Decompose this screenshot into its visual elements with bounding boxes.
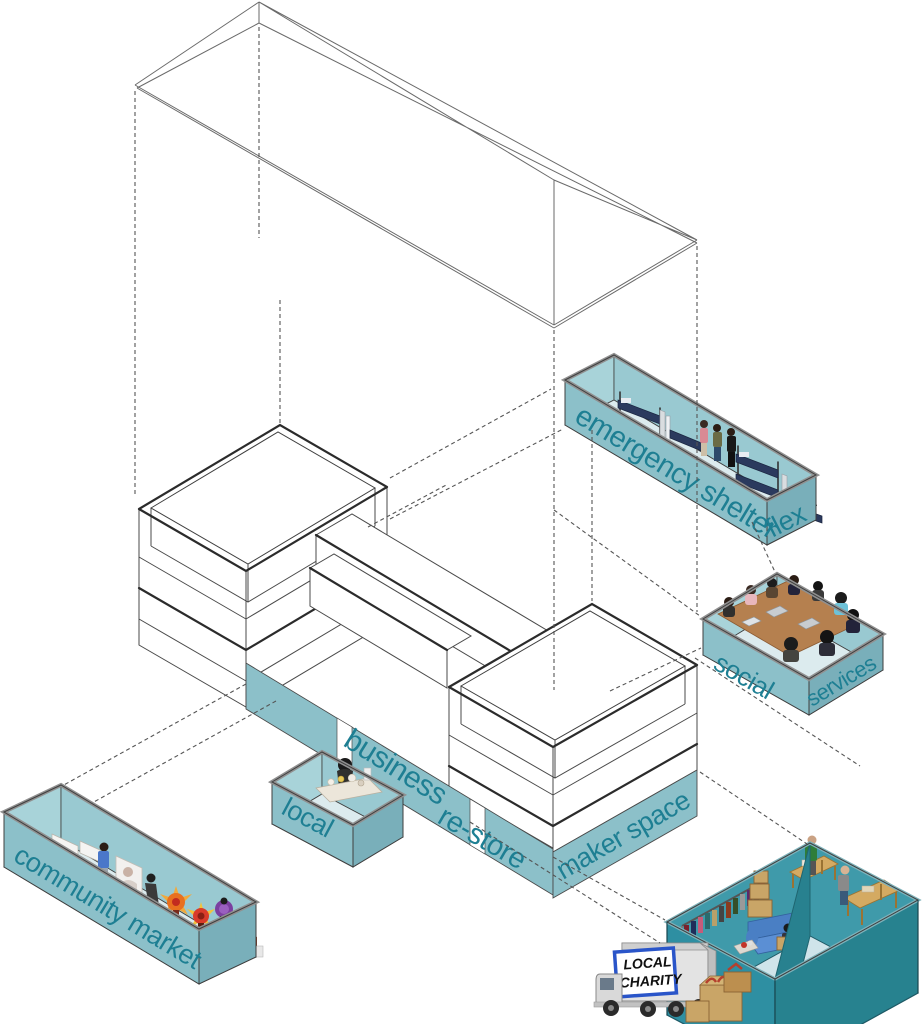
social-services-box: social services	[703, 574, 883, 715]
building-envelope-wireframe	[135, 2, 697, 328]
diagram-stage: business re-store maker space local	[0, 0, 922, 1024]
community-market-box: community market	[4, 785, 263, 984]
truck-windshield	[600, 978, 614, 990]
axonometric-program-diagram: business re-store maker space local	[0, 0, 922, 1024]
emergency-shelter-box: emergency shelter flex	[565, 355, 822, 546]
truck-sign-line1: LOCAL	[623, 953, 672, 972]
podium-massing: business re-store maker space	[139, 425, 697, 898]
truck-sign: LOCAL CHARITY	[614, 947, 684, 997]
